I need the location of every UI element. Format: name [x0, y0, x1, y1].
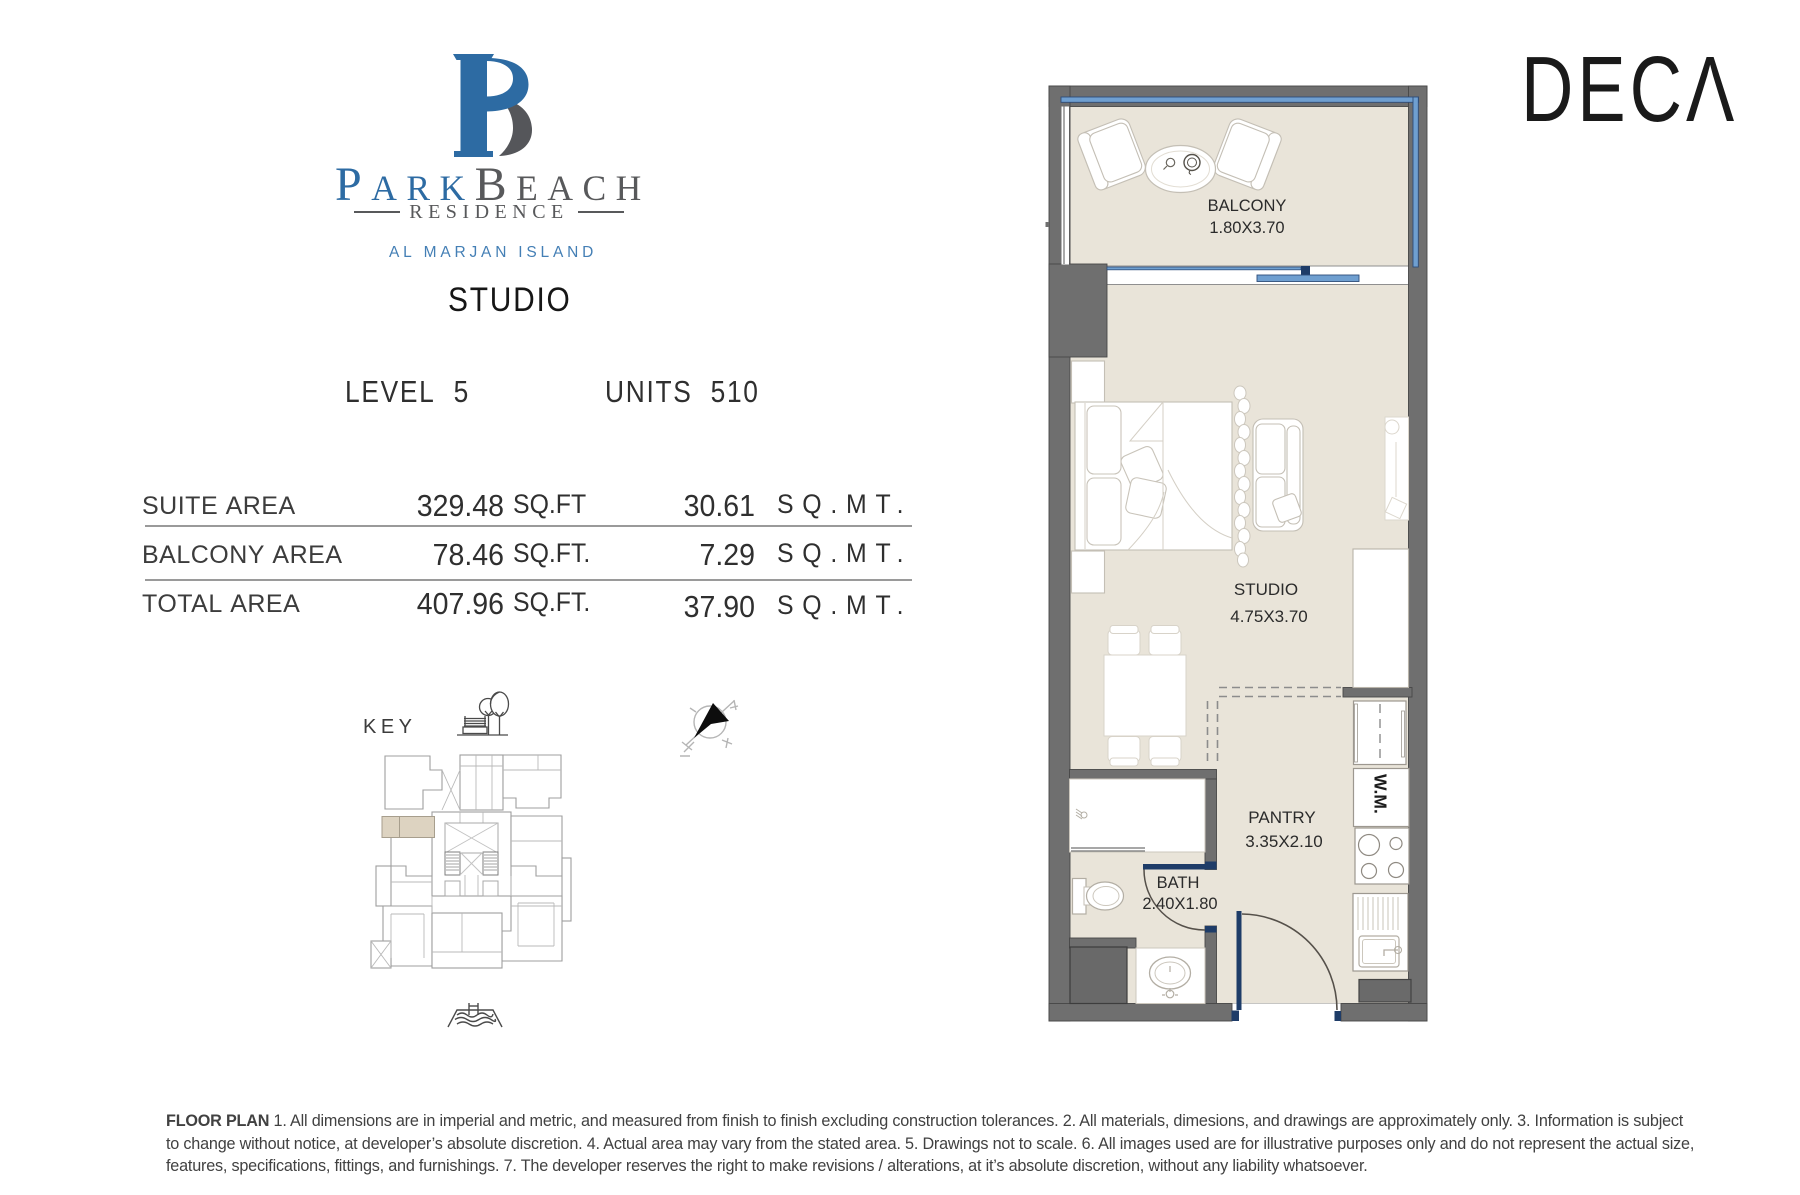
svg-text:PANTRY: PANTRY [1248, 808, 1315, 827]
svg-text:STUDIO: STUDIO [1234, 580, 1298, 599]
svg-text:W.M.: W.M. [1371, 774, 1391, 814]
svg-text:4.75X3.70: 4.75X3.70 [1230, 607, 1308, 626]
svg-text:3.35X2.10: 3.35X2.10 [1245, 832, 1323, 851]
svg-text:BATH: BATH [1157, 874, 1200, 892]
svg-text:BALCONY: BALCONY [1208, 197, 1287, 215]
svg-text:2.40X1.80: 2.40X1.80 [1142, 895, 1217, 913]
svg-text:1.80X3.70: 1.80X3.70 [1209, 219, 1284, 237]
